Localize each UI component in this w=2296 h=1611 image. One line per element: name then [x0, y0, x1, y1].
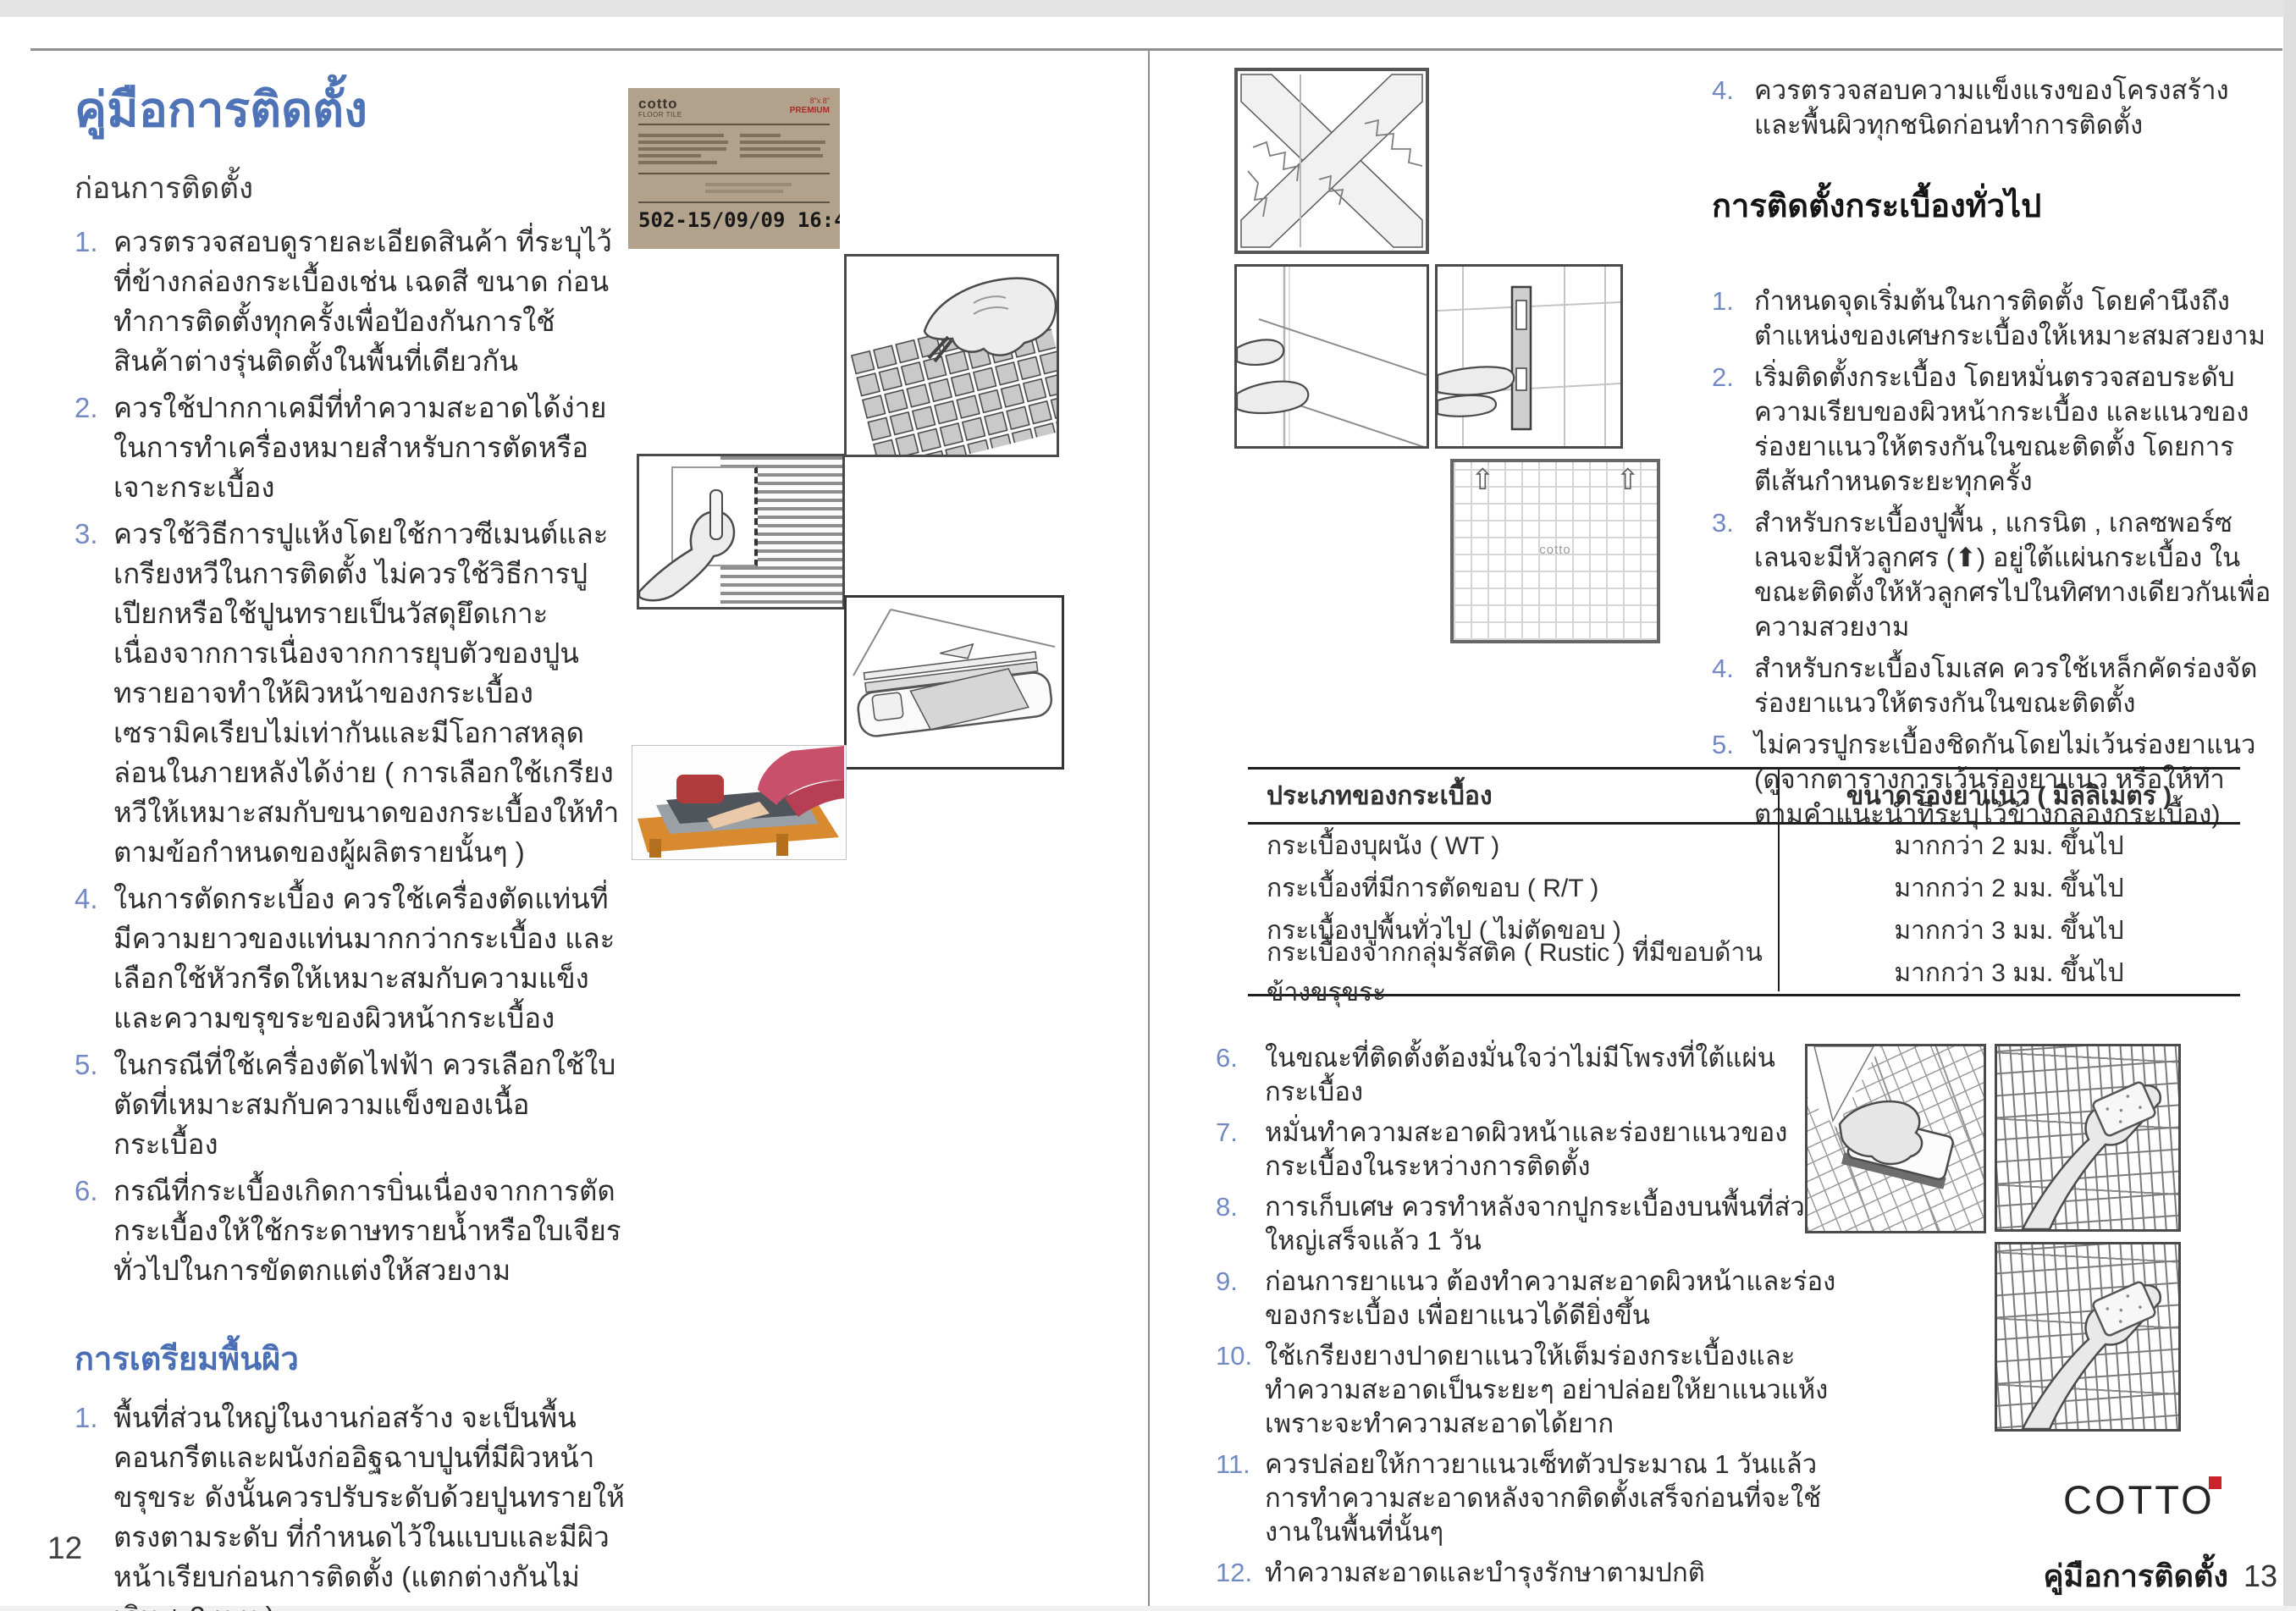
list-item: 4. สำหรับกระเบื้องโมเสค ควรใช้เหล็กคัดร่… [1712, 651, 2272, 720]
footer-title: คู่มือการติดตั้ง [2043, 1559, 2228, 1593]
sponge-clean-illustration-1 [1995, 1044, 2181, 1232]
item-number: 2. [1712, 360, 1754, 394]
item-number: 11. [1216, 1448, 1265, 1481]
item-number: 5. [75, 1045, 113, 1084]
scan-top-edge [0, 0, 2296, 17]
sponge-arm-drawing [1997, 1046, 2178, 1229]
list-item: 11. ควรปล่อยให้กาวยาแนวเซ็ทตัวประมาณ 1 ว… [1216, 1448, 1861, 1549]
table-column-divider [1778, 767, 1780, 991]
item-text: ควรใช้ปากกาเคมีที่ทำความสะอาดได้ง่ายในกา… [113, 388, 625, 507]
electric-cutter-scene [632, 746, 844, 858]
item-text: ควรตรวจสอบความแข็งแรงของโครงสร้างและพื้น… [1754, 73, 2272, 142]
box-brand-text: cotto [638, 97, 682, 111]
cotto-logo-red-square [2209, 1476, 2221, 1489]
item-text: เริ่มติดตั้งกระเบื้อง โดยหมั่นตรวจสอบระด… [1754, 360, 2272, 499]
list-item: 10. ใช้เกรียงยางปาดยาแนวให้เต็มร่องกระเบ… [1216, 1339, 1861, 1441]
item-number: 1. [75, 1398, 113, 1437]
item-text: ก่อนการยาแนว ต้องทำความสะอาดผิวหน้าและร่… [1265, 1265, 1861, 1332]
cotto-logo: COTTO [2063, 1480, 2233, 1529]
item-text: สำหรับกระเบื้องปูพื้น , แกรนิต , เกลซพอร… [1754, 505, 2272, 644]
table-cell: มากกว่า 2 มม. ขึ้นไป [1778, 869, 2240, 908]
page-title: คู่มือการติดตั้ง [75, 81, 625, 139]
left-text-column: คู่มือการติดตั้ง ก่อนการติดตั้ง 1. ควรตร… [75, 81, 625, 1611]
tile-box-photo: cotto FLOOR TILE 8"x 8" PREMIUM [628, 88, 840, 249]
item-number: 9. [1216, 1265, 1265, 1299]
scan-right-edge [2283, 0, 2296, 1611]
hand-lower [1237, 382, 1308, 413]
box-rule [638, 201, 830, 203]
tile-cutter-drawing [847, 598, 1062, 767]
level-check-illustration [1435, 264, 1623, 449]
grout-spacing-table: ประเภทของกระเบื้อง ขนาดร่องยาแนว ( มิลลิ… [1248, 767, 2240, 996]
table-cell: มากกว่า 3 มม. ขึ้นไป [1778, 911, 2240, 951]
list-item: 6. กรณีที่กระเบื้องเกิดการบิ่นเนื่องจากก… [75, 1171, 625, 1290]
box-rule [638, 173, 830, 174]
item-number: 6. [1216, 1041, 1265, 1075]
table-cell: มากกว่า 2 มม. ขึ้นไป [1778, 826, 2240, 866]
box-grade-text: PREMIUM [790, 106, 830, 116]
table-cell: มากกว่า 3 มม. ขึ้นไป [1778, 953, 2240, 993]
list-item: 3. สำหรับกระเบื้องปูพื้น , แกรนิต , เกลซ… [1712, 505, 2272, 644]
list-item: 3. ควรใช้วิธีการปูแห้งโดยใช้กาวซีเมนต์แล… [75, 514, 625, 872]
chalk-line-drawing [1237, 267, 1427, 446]
table-header-tile-type: ประเภทของกระเบื้อง [1248, 776, 1778, 816]
table-row: กระเบื้องจากกลุ่มรัสติค ( Rustic ) ที่มี… [1248, 952, 2240, 994]
manual-tile-cutter-illustration [844, 595, 1064, 770]
list-item: 1. ควรตรวจสอบดูรายละเอียดสินค้า ที่ระบุไ… [75, 222, 625, 381]
item-number: 12. [1216, 1556, 1265, 1590]
sponge-clean-illustration-2 [1995, 1242, 2181, 1432]
list-item: 7. หมั่นทำความสะอาดผิวหน้าและร่องยาแนวขอ… [1216, 1116, 1861, 1183]
box-rule [638, 124, 830, 125]
item-number: 8. [1216, 1190, 1265, 1224]
item-text: พื้นที่ส่วนใหญ่ในงานก่อสร้าง จะเป็นพื้นค… [113, 1398, 625, 1611]
grout-float-drawing [1808, 1046, 1984, 1231]
box-size-text: 8"x 8" [790, 97, 830, 106]
item-text: ในการตัดกระเบื้อง ควรใช้เครื่องตัดแท่นที… [113, 879, 625, 1038]
right-bottom-text-column: 6. ในขณะที่ติดตั้งต้องมั่นใจว่าไม่มีโพรง… [1216, 1041, 1861, 1597]
list-item: 6. ในขณะที่ติดตั้งต้องมั่นใจว่าไม่มีโพรง… [1216, 1041, 1861, 1109]
item-text: ควรตรวจสอบดูรายละเอียดสินค้า ที่ระบุไว้ท… [113, 222, 625, 381]
table-cell: กระเบื้องบุผนัง ( WT ) [1248, 826, 1778, 866]
list-item: 1. กำหนดจุดเริ่มต้นในการติดตั้ง โดยคำนึง… [1712, 284, 2272, 353]
item-number: 1. [75, 222, 113, 262]
table-header-grout-size: ขนาดร่องยาแนว ( มิลลิเมตร ) [1778, 776, 2240, 816]
fine-print-bars [638, 130, 830, 168]
list-item: 2. ควรใช้ปากกาเคมีที่ทำความสะอาดได้ง่ายใ… [75, 388, 625, 507]
item-text: ควรใช้วิธีการปูแห้งโดยใช้กาวซีเมนต์และเก… [113, 514, 625, 872]
up-arrow-icon: ⇧ [1616, 466, 1641, 494]
fine-print-bars [638, 179, 830, 196]
box-product-text: FLOOR TILE [638, 111, 682, 119]
list-item: 1. พื้นที่ส่วนใหญ่ในงานก่อสร้าง จะเป็นพื… [75, 1398, 625, 1611]
table-cell: กระเบื้องที่มีการตัดขอบ ( R/T ) [1248, 869, 1778, 908]
cracked-substrate-illustration [1234, 68, 1429, 254]
item-text: ใช้เกรียงยางปาดยาแนวให้เต็มร่องกระเบื้อง… [1265, 1339, 1861, 1441]
page-number-right: 13 [2244, 1559, 2277, 1593]
item-text: ควรปล่อยให้กาวยาแนวเซ็ทตัวประมาณ 1 วันแล… [1265, 1448, 1861, 1549]
box-label-header: cotto FLOOR TILE 8"x 8" PREMIUM [638, 97, 830, 119]
item-number: 2. [75, 388, 113, 428]
item-text: ในขณะที่ติดตั้งต้องมั่นใจว่าไม่มีโพรงที่… [1265, 1041, 1861, 1109]
chalk-line-illustration [1234, 264, 1429, 449]
tile-back-illustration: ⇧ ⇧ cotto [1450, 459, 1660, 643]
page-divider [1148, 48, 1150, 1611]
list-item: 12. ทำความสะอาดและบำรุงรักษาตามปกติ [1216, 1556, 1861, 1590]
item-text: ทำความสะอาดและบำรุงรักษาตามปกติ [1265, 1556, 1861, 1590]
table-cell: กระเบื้องจากกลุ่มรัสติค ( Rustic ) ที่มี… [1248, 933, 1778, 1012]
list-item: 4. ในการตัดกระเบื้อง ควรใช้เครื่องตัดแท่… [75, 879, 625, 1038]
item-number: 4. [1712, 651, 1754, 686]
item-number: 10. [1216, 1339, 1265, 1373]
item-number: 5. [1712, 727, 1754, 762]
sponge-arm-drawing [1997, 1244, 2178, 1429]
item-number: 1. [1712, 284, 1754, 318]
box-date-stamp: 502-15/09/09 16:42 S/563 [638, 208, 830, 232]
item-number: 4. [1712, 73, 1754, 108]
item-text: สำหรับกระเบื้องโมเสค ควรใช้เหล็กคัดร่องจ… [1754, 651, 2272, 720]
item-number: 3. [1712, 505, 1754, 540]
grout-float-illustration [1805, 1044, 1986, 1233]
list-item: 4. ควรตรวจสอบความแข็งแรงของโครงสร้างและพ… [1712, 73, 2272, 142]
item-text: กรณีที่กระเบื้องเกิดการบิ่นเนื่องจากการต… [113, 1171, 625, 1290]
hand-with-trowel [639, 456, 842, 607]
section-surface-prep-heading: การเตรียมพื้นผิว [75, 1339, 625, 1381]
mosaic-sheet-drawing [847, 257, 1057, 455]
list-item: 8. การเก็บเศษ ควรทำหลังจากปูกระเบื้องบนพ… [1216, 1190, 1861, 1258]
item-text: ในกรณีที่ใช้เครื่องตัดไฟฟ้า ควรเลือกใช้ใ… [113, 1045, 625, 1164]
list-item: 9. ก่อนการยาแนว ต้องทำความสะอาดผิวหน้าแล… [1216, 1265, 1861, 1332]
item-number: 4. [75, 879, 113, 919]
table-header-row: ประเภทของกระเบื้อง ขนาดร่องยาแนว ( มิลลิ… [1248, 770, 2240, 822]
electric-cutter-photo [632, 745, 847, 860]
page-number-left: 12 [47, 1531, 82, 1566]
table-row: กระเบื้องที่มีการตัดขอบ ( R/T ) มากกว่า … [1248, 867, 2240, 909]
hand-upper [1237, 339, 1283, 365]
adhesive-trowel-illustration [637, 454, 845, 610]
section-general-install-heading: การติดตั้งกระเบื้องทั่วไป [1712, 186, 2272, 228]
manual-spread: คู่มือการติดตั้ง ก่อนการติดตั้ง 1. ควรตร… [0, 0, 2296, 1611]
right-top-text-column: 4. ควรตรวจสอบความแข็งแรงของโครงสร้างและพ… [1712, 73, 2272, 838]
item-number: 6. [75, 1171, 113, 1211]
list-item: 2. เริ่มติดตั้งกระเบื้อง โดยหมั่นตรวจสอบ… [1712, 360, 2272, 499]
right-page-footer: คู่มือการติดตั้ง13 [1939, 1552, 2277, 1600]
item-number: 7. [1216, 1116, 1265, 1150]
top-rule [30, 48, 2282, 51]
item-text: การเก็บเศษ ควรทำหลังจากปูกระเบื้องบนพื้น… [1265, 1190, 1861, 1258]
list-item: 5. ในกรณีที่ใช้เครื่องตัดไฟฟ้า ควรเลือกใ… [75, 1045, 625, 1164]
up-arrow-icon: ⇧ [1471, 466, 1495, 494]
section-before-install-heading: ก่อนการติดตั้ง [75, 169, 625, 208]
item-text: หมั่นทำความสะอาดผิวหน้าและร่องยาแนวของกร… [1265, 1116, 1861, 1183]
cotto-logo-text: COTTO [2063, 1477, 2215, 1522]
table-row: กระเบื้องบุผนัง ( WT ) มากกว่า 2 มม. ขึ้… [1248, 825, 2240, 867]
tile-back-brand: cotto [1454, 543, 1657, 557]
level-drawing [1438, 267, 1620, 446]
item-number: 3. [75, 514, 113, 554]
cracked-x-drawing [1238, 71, 1426, 251]
mosaic-marking-illustration [844, 254, 1059, 457]
item-text: กำหนดจุดเริ่มต้นในการติดตั้ง โดยคำนึงถึง… [1754, 284, 2272, 353]
